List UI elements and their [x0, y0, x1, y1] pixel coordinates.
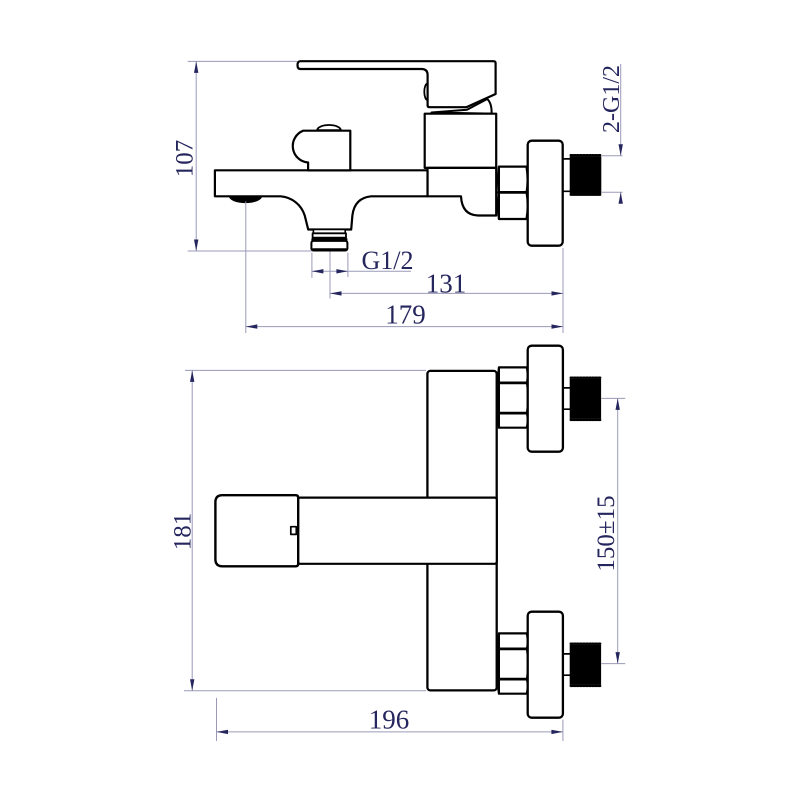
svg-text:150±15: 150±15	[593, 495, 620, 571]
svg-text:G1/2: G1/2	[362, 246, 414, 275]
svg-text:181: 181	[170, 513, 197, 551]
svg-text:196: 196	[369, 705, 410, 735]
svg-text:131: 131	[426, 269, 467, 299]
svg-text:107: 107	[172, 140, 199, 178]
svg-text:2-G1/2: 2-G1/2	[599, 65, 625, 133]
svg-text:179: 179	[385, 300, 426, 330]
